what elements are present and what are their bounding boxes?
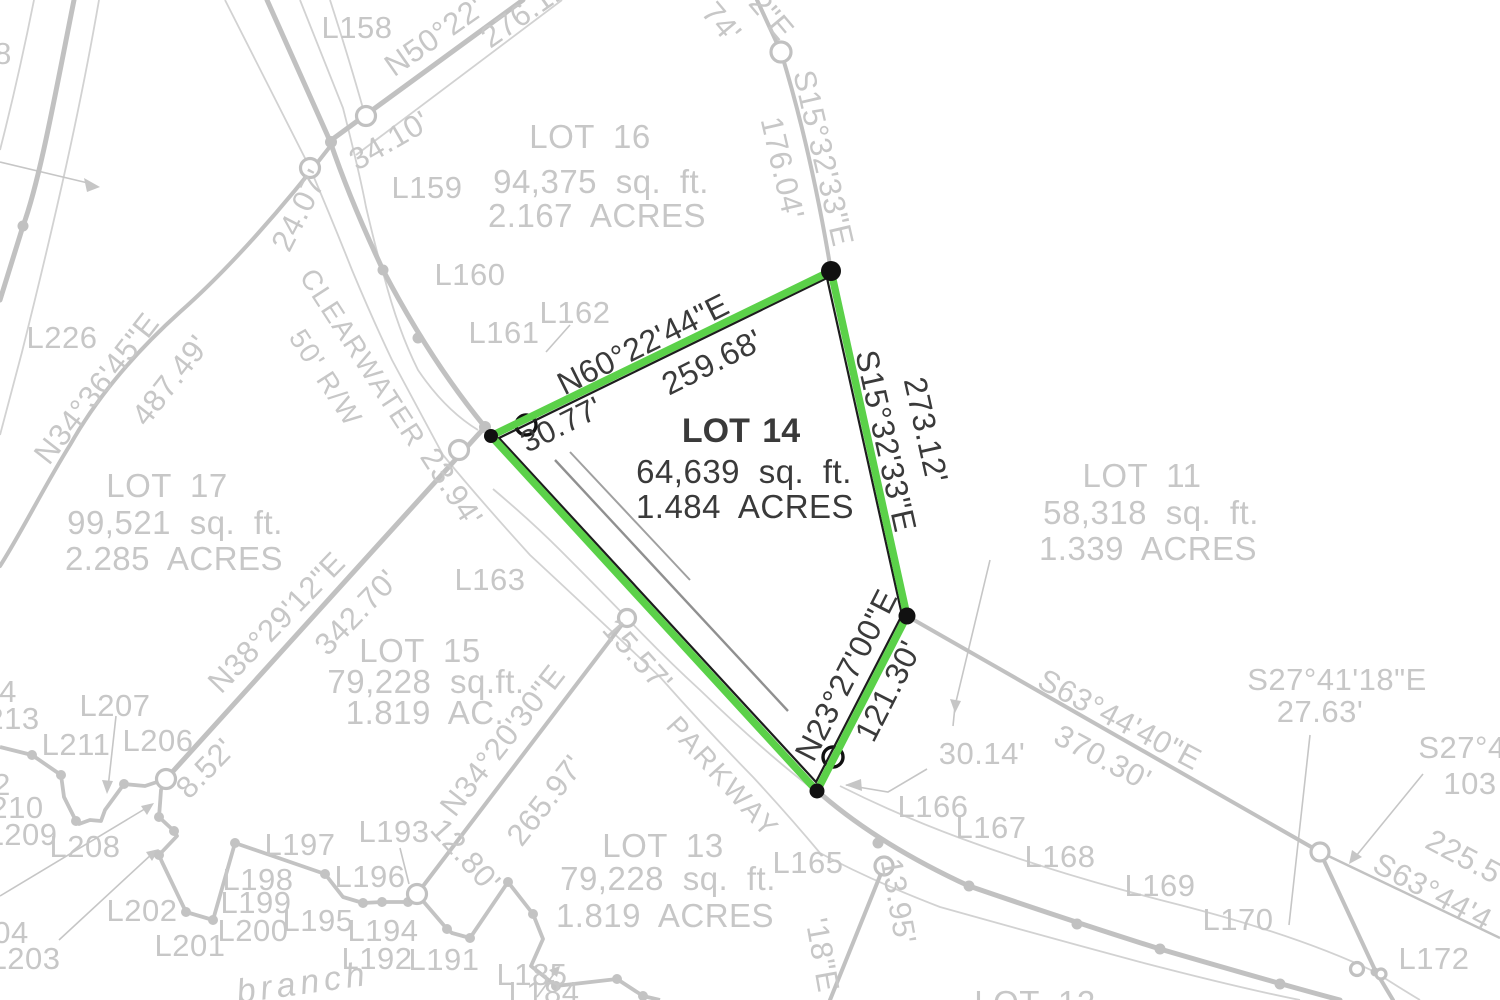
svg-text:103: 103	[1443, 766, 1496, 801]
svg-text:27.63': 27.63'	[1277, 694, 1364, 729]
svg-text:L202: L202	[107, 893, 178, 928]
svg-text:L169: L169	[1125, 868, 1196, 903]
svg-text:L160: L160	[435, 257, 506, 292]
svg-text:L158: L158	[322, 10, 393, 45]
svg-text:L168: L168	[1025, 839, 1096, 874]
svg-text:1.819 ACRES: 1.819 ACRES	[556, 897, 774, 934]
svg-text:L170: L170	[1203, 902, 1274, 937]
svg-text:L211: L211	[42, 727, 111, 762]
svg-text:L196: L196	[335, 859, 406, 894]
svg-text:2.285 ACRES: 2.285 ACRES	[65, 540, 283, 577]
svg-text:2: 2	[0, 767, 11, 802]
svg-text:L195: L195	[283, 903, 354, 938]
svg-text:L162: L162	[540, 295, 611, 330]
svg-text:LOT 17: LOT 17	[106, 467, 227, 504]
svg-text:1.339 ACRES: 1.339 ACRES	[1039, 530, 1257, 567]
svg-text:L206: L206	[123, 723, 194, 758]
svg-text:58,318 sq. ft.: 58,318 sq. ft.	[1043, 494, 1259, 531]
svg-text:L191: L191	[409, 942, 480, 977]
svg-text:L184: L184	[509, 975, 580, 1000]
svg-text:L207: L207	[80, 688, 151, 723]
svg-text:4: 4	[0, 674, 17, 709]
svg-text:L201: L201	[155, 928, 226, 963]
svg-text:04: 04	[0, 915, 29, 950]
svg-text:8: 8	[0, 36, 12, 71]
svg-text:LOT 16: LOT 16	[529, 118, 650, 155]
svg-text:L226: L226	[27, 320, 98, 355]
svg-text:S27°41'18"E: S27°41'18"E	[1247, 662, 1427, 697]
svg-text:LOT 14: LOT 14	[682, 412, 800, 450]
svg-text:30.14': 30.14'	[939, 736, 1026, 771]
svg-text:1.484 ACRES: 1.484 ACRES	[636, 488, 854, 525]
svg-text:L163: L163	[455, 562, 526, 597]
svg-text:LOT 11: LOT 11	[1082, 457, 1201, 494]
svg-text:S27°4: S27°4	[1418, 730, 1500, 765]
svg-text:L172: L172	[1399, 941, 1470, 976]
svg-text:L165: L165	[773, 845, 844, 880]
svg-text:L161: L161	[469, 315, 540, 350]
svg-text:L208: L208	[50, 829, 121, 864]
svg-text:LOT 12: LOT 12	[974, 984, 1095, 1000]
svg-text:L159: L159	[392, 170, 463, 205]
svg-text:L193: L193	[359, 814, 430, 849]
svg-text:79,228 sq. ft.: 79,228 sq. ft.	[560, 860, 776, 897]
svg-text:1.819 AC.: 1.819 AC.	[346, 694, 504, 731]
svg-text:2.167 ACRES: 2.167 ACRES	[488, 197, 706, 234]
svg-text:L198: L198	[223, 862, 294, 897]
svg-text:64,639 sq. ft.: 64,639 sq. ft.	[636, 453, 852, 490]
svg-text:L167: L167	[956, 810, 1027, 845]
svg-text:L197: L197	[265, 827, 336, 862]
svg-text:LOT 13: LOT 13	[602, 827, 723, 864]
svg-text:94,375 sq. ft.: 94,375 sq. ft.	[493, 163, 709, 200]
svg-text:99,521 sq. ft.: 99,521 sq. ft.	[67, 504, 283, 541]
